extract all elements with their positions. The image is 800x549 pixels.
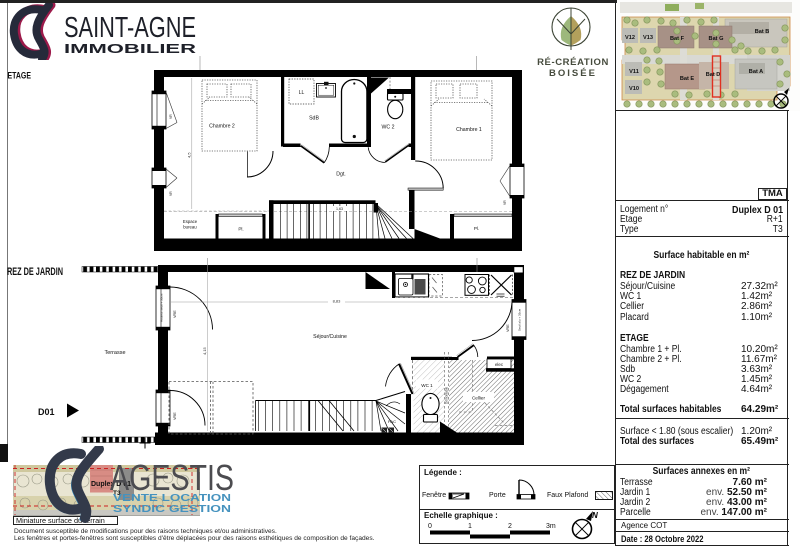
svg-text:V11: V11 (629, 69, 639, 75)
svg-text:WC 2: WC 2 (382, 125, 395, 131)
svg-text:1,63: 1,63 (336, 207, 343, 211)
svg-text:VR: VR (169, 114, 173, 119)
svg-text:Bat G: Bat G (709, 36, 724, 42)
svg-text:Bat D: Bat D (706, 72, 721, 78)
svg-text:Cellier: Cellier (472, 396, 485, 401)
svg-text:V10: V10 (629, 86, 639, 92)
svg-text:Espace: Espace (183, 219, 198, 224)
svg-text:Pl.: Pl. (474, 226, 479, 231)
svg-text:VR: VR (503, 200, 507, 205)
svg-text:Démontable: Démontable (445, 387, 449, 404)
svg-text:WC 1: WC 1 (421, 383, 433, 388)
svg-text:VRE: VRE (506, 324, 510, 332)
svg-text:Chambre 1: Chambre 1 (456, 127, 482, 133)
svg-text:4,5: 4,5 (187, 152, 192, 158)
svg-text:Dgt.: Dgt. (336, 172, 346, 178)
svg-text:Bat A: Bat A (749, 69, 763, 75)
svg-text:3m: 3m (546, 523, 556, 530)
svg-text:PAC: PAC (388, 419, 396, 424)
svg-text:SYNDIC GESTION: SYNDIC GESTION (113, 504, 231, 515)
svg-text:elec: elec (495, 362, 504, 367)
svg-text:8,83: 8,83 (333, 299, 342, 304)
svg-text:LL: LL (299, 90, 305, 96)
svg-text:VRE: VRE (173, 310, 177, 318)
svg-text:VRE: VRE (173, 412, 177, 420)
svg-text:Bat B: Bat B (755, 29, 770, 35)
svg-text:Bat F: Bat F (670, 36, 685, 42)
svg-text:AGESTIS: AGESTIS (110, 458, 234, 498)
svg-text:Terrasse: Terrasse (104, 350, 125, 356)
svg-text:Hauteur seuil + 30cm: Hauteur seuil + 30cm (160, 293, 164, 322)
svg-text:Seuil alu + 35cm: Seuil alu + 35cm (518, 308, 522, 331)
svg-text:VENTE LOCATION: VENTE LOCATION (113, 493, 231, 504)
svg-text:0: 0 (428, 523, 432, 530)
svg-text:2: 2 (508, 523, 512, 530)
svg-text:bureau: bureau (183, 225, 197, 230)
svg-text:N: N (592, 511, 598, 520)
svg-text:4,15: 4,15 (202, 346, 207, 355)
svg-text:VR: VR (169, 191, 173, 196)
svg-text:V12: V12 (625, 35, 635, 41)
svg-text:Pl.: Pl. (238, 227, 243, 232)
svg-text:V13: V13 (643, 35, 653, 41)
svg-text:Bat E: Bat E (680, 76, 695, 82)
svg-text:Chambre 2: Chambre 2 (209, 124, 235, 130)
svg-text:Séjour/Cuisine: Séjour/Cuisine (313, 334, 347, 340)
svg-text:D01: D01 (38, 407, 55, 417)
svg-text:1: 1 (468, 523, 472, 530)
svg-text:SdB: SdB (309, 116, 319, 122)
